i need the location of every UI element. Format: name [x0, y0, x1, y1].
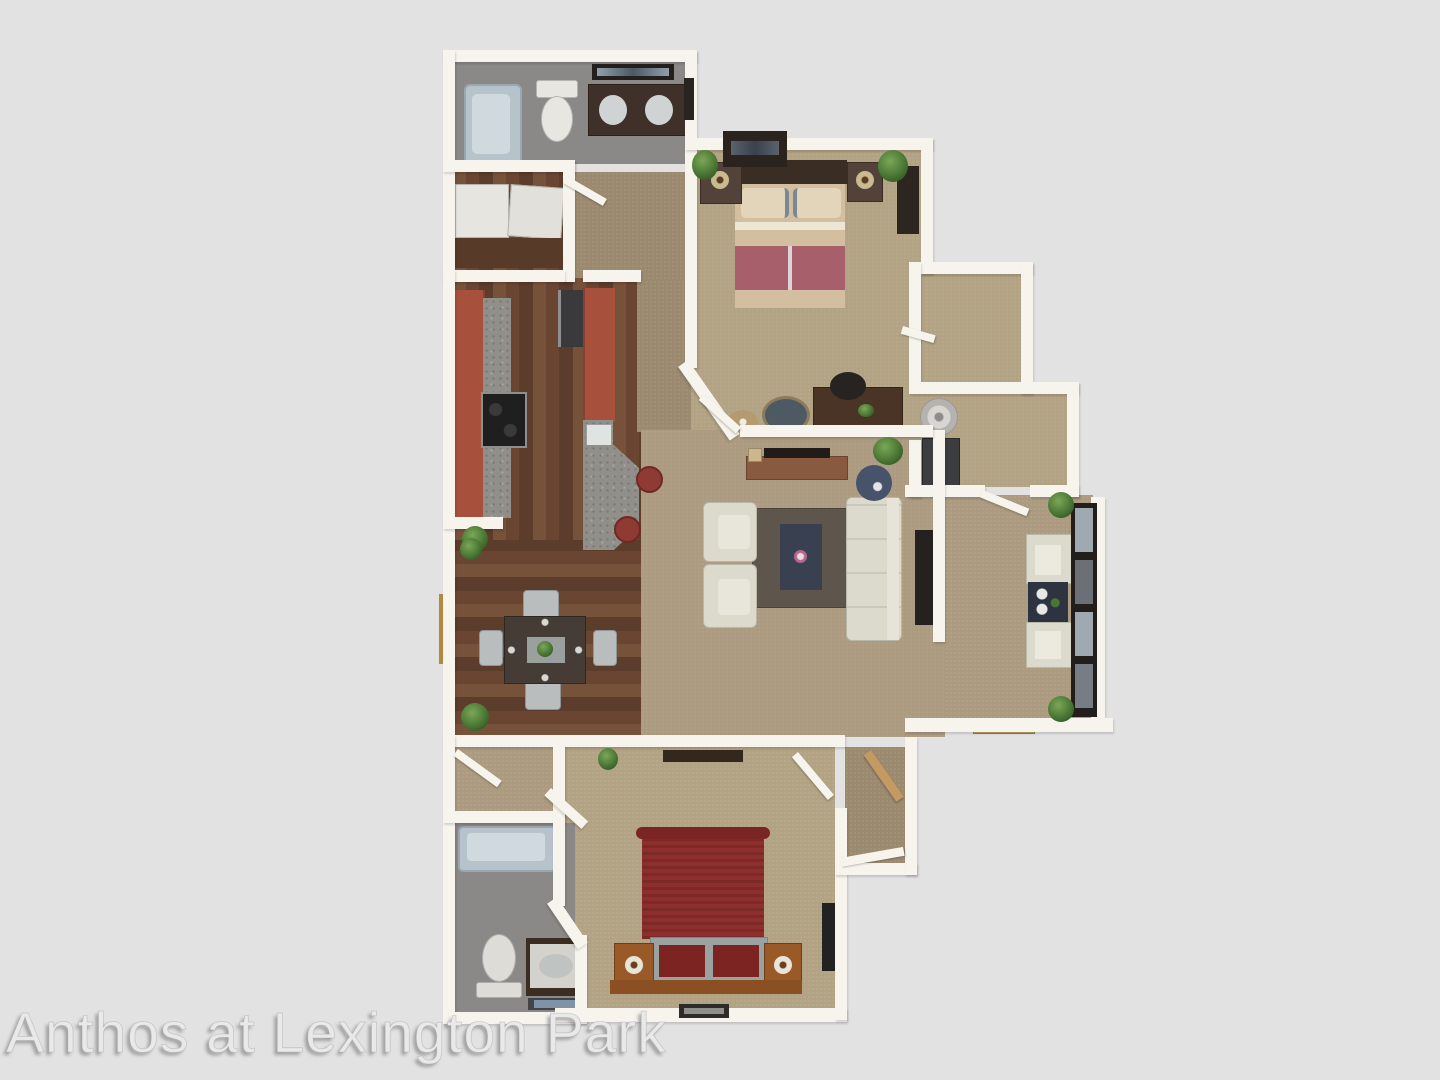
- bathtub: [458, 826, 556, 872]
- plant: [1048, 492, 1074, 518]
- plant: [873, 437, 903, 465]
- wall: [740, 425, 933, 437]
- lamp: [774, 956, 792, 974]
- table-centerpiece-plant: [537, 641, 553, 657]
- bathroom-door-frame: [684, 78, 694, 120]
- wall: [905, 485, 985, 497]
- soundbar: [764, 448, 830, 458]
- lamp: [856, 171, 874, 189]
- mirror: [592, 64, 674, 80]
- tv-stand: [723, 131, 787, 167]
- plant: [460, 538, 482, 560]
- vanity-double: [588, 84, 686, 136]
- hall-upper-floor: [575, 172, 685, 282]
- sofa-backrest: [887, 498, 899, 640]
- laundry-cabinet: [455, 238, 563, 268]
- watermark-text: Anthos at Lexington Park: [6, 1000, 667, 1066]
- desk-plant: [858, 404, 874, 417]
- wall: [905, 737, 917, 875]
- sofa: [846, 497, 902, 641]
- window-pane: [1075, 664, 1093, 708]
- sink: [599, 95, 627, 125]
- pillow: [741, 188, 789, 218]
- dryer: [507, 184, 564, 240]
- wall: [1021, 262, 1033, 394]
- wall: [905, 718, 1113, 732]
- wall: [443, 270, 455, 747]
- sink: [539, 954, 573, 978]
- wall: [443, 160, 575, 172]
- tv-screen: [731, 141, 779, 155]
- window-pane: [1075, 560, 1093, 604]
- dining-chair: [479, 630, 503, 666]
- patio-chair-cushion: [1035, 631, 1061, 659]
- wall: [921, 138, 933, 274]
- bedroom-lower-window: [679, 1004, 729, 1018]
- dining-table: [504, 616, 586, 684]
- bed-lower-foot-roll: [636, 827, 770, 839]
- bed-lower-bench: [650, 937, 768, 983]
- bedroom-lower-tv: [822, 903, 835, 971]
- window-pane: [1075, 508, 1093, 552]
- patio-chair: [1026, 622, 1072, 668]
- toilet-bowl: [541, 96, 573, 142]
- window-pane: [1075, 612, 1093, 656]
- plant: [878, 150, 908, 182]
- wall: [909, 262, 921, 382]
- wall-tv: [915, 530, 933, 625]
- wall: [443, 270, 565, 282]
- wall: [443, 735, 455, 1024]
- bar-stool: [614, 516, 641, 543]
- armchair: [703, 502, 757, 562]
- plant: [598, 748, 618, 770]
- sheet-fold: [735, 222, 845, 230]
- plant: [692, 150, 718, 180]
- lamp: [625, 956, 643, 974]
- patio-chair-cushion: [1035, 545, 1061, 575]
- armchair-cushion: [718, 515, 750, 549]
- wall: [933, 430, 945, 642]
- coffee-table: [780, 524, 822, 590]
- kitchen-cabinets-right: [583, 288, 615, 422]
- bar-stool: [636, 466, 663, 493]
- wall: [909, 382, 1079, 394]
- wall: [443, 735, 845, 747]
- mirror-glass: [597, 68, 669, 76]
- bathtub-basin: [467, 833, 545, 861]
- toilet-base: [476, 982, 522, 998]
- washer: [455, 184, 509, 238]
- plant: [461, 703, 489, 731]
- wall: [1067, 382, 1079, 497]
- wall: [835, 808, 847, 1020]
- candle: [748, 448, 762, 462]
- armchair: [703, 564, 757, 628]
- bed-platform: [610, 980, 802, 994]
- floor-plan: Anthos at Lexington Park: [0, 0, 1440, 1080]
- bed-lower: [642, 831, 764, 939]
- bathtub-basin: [472, 94, 510, 154]
- pillow: [793, 188, 841, 218]
- toilet: [482, 934, 516, 982]
- walkin-closet-floor: [921, 272, 1021, 384]
- wall-shelf: [663, 750, 743, 762]
- patio-chair: [1026, 534, 1072, 584]
- plant: [1048, 696, 1074, 722]
- patio-table: [1028, 582, 1068, 622]
- wall: [553, 811, 565, 906]
- blanket: [735, 246, 845, 290]
- coffee-table-flower: [794, 550, 807, 563]
- kitchen-sink: [586, 424, 612, 446]
- armchair-cushion: [718, 579, 750, 615]
- dining-chair: [525, 680, 561, 710]
- blanket-stripe: [788, 246, 792, 290]
- wall: [443, 811, 565, 823]
- range-cooktop: [481, 392, 527, 448]
- sink: [645, 95, 673, 125]
- bathtub: [464, 84, 522, 168]
- wall: [583, 270, 641, 282]
- dining-chair: [593, 630, 617, 666]
- side-table: [856, 465, 892, 501]
- bench-cushion: [659, 945, 705, 977]
- bed-upper: [735, 184, 845, 308]
- wall: [921, 262, 1033, 274]
- desk-chair: [830, 372, 866, 400]
- window-glass: [684, 1008, 724, 1014]
- window-wall: [1071, 503, 1097, 717]
- wall: [443, 50, 697, 62]
- bench-cushion: [713, 945, 759, 977]
